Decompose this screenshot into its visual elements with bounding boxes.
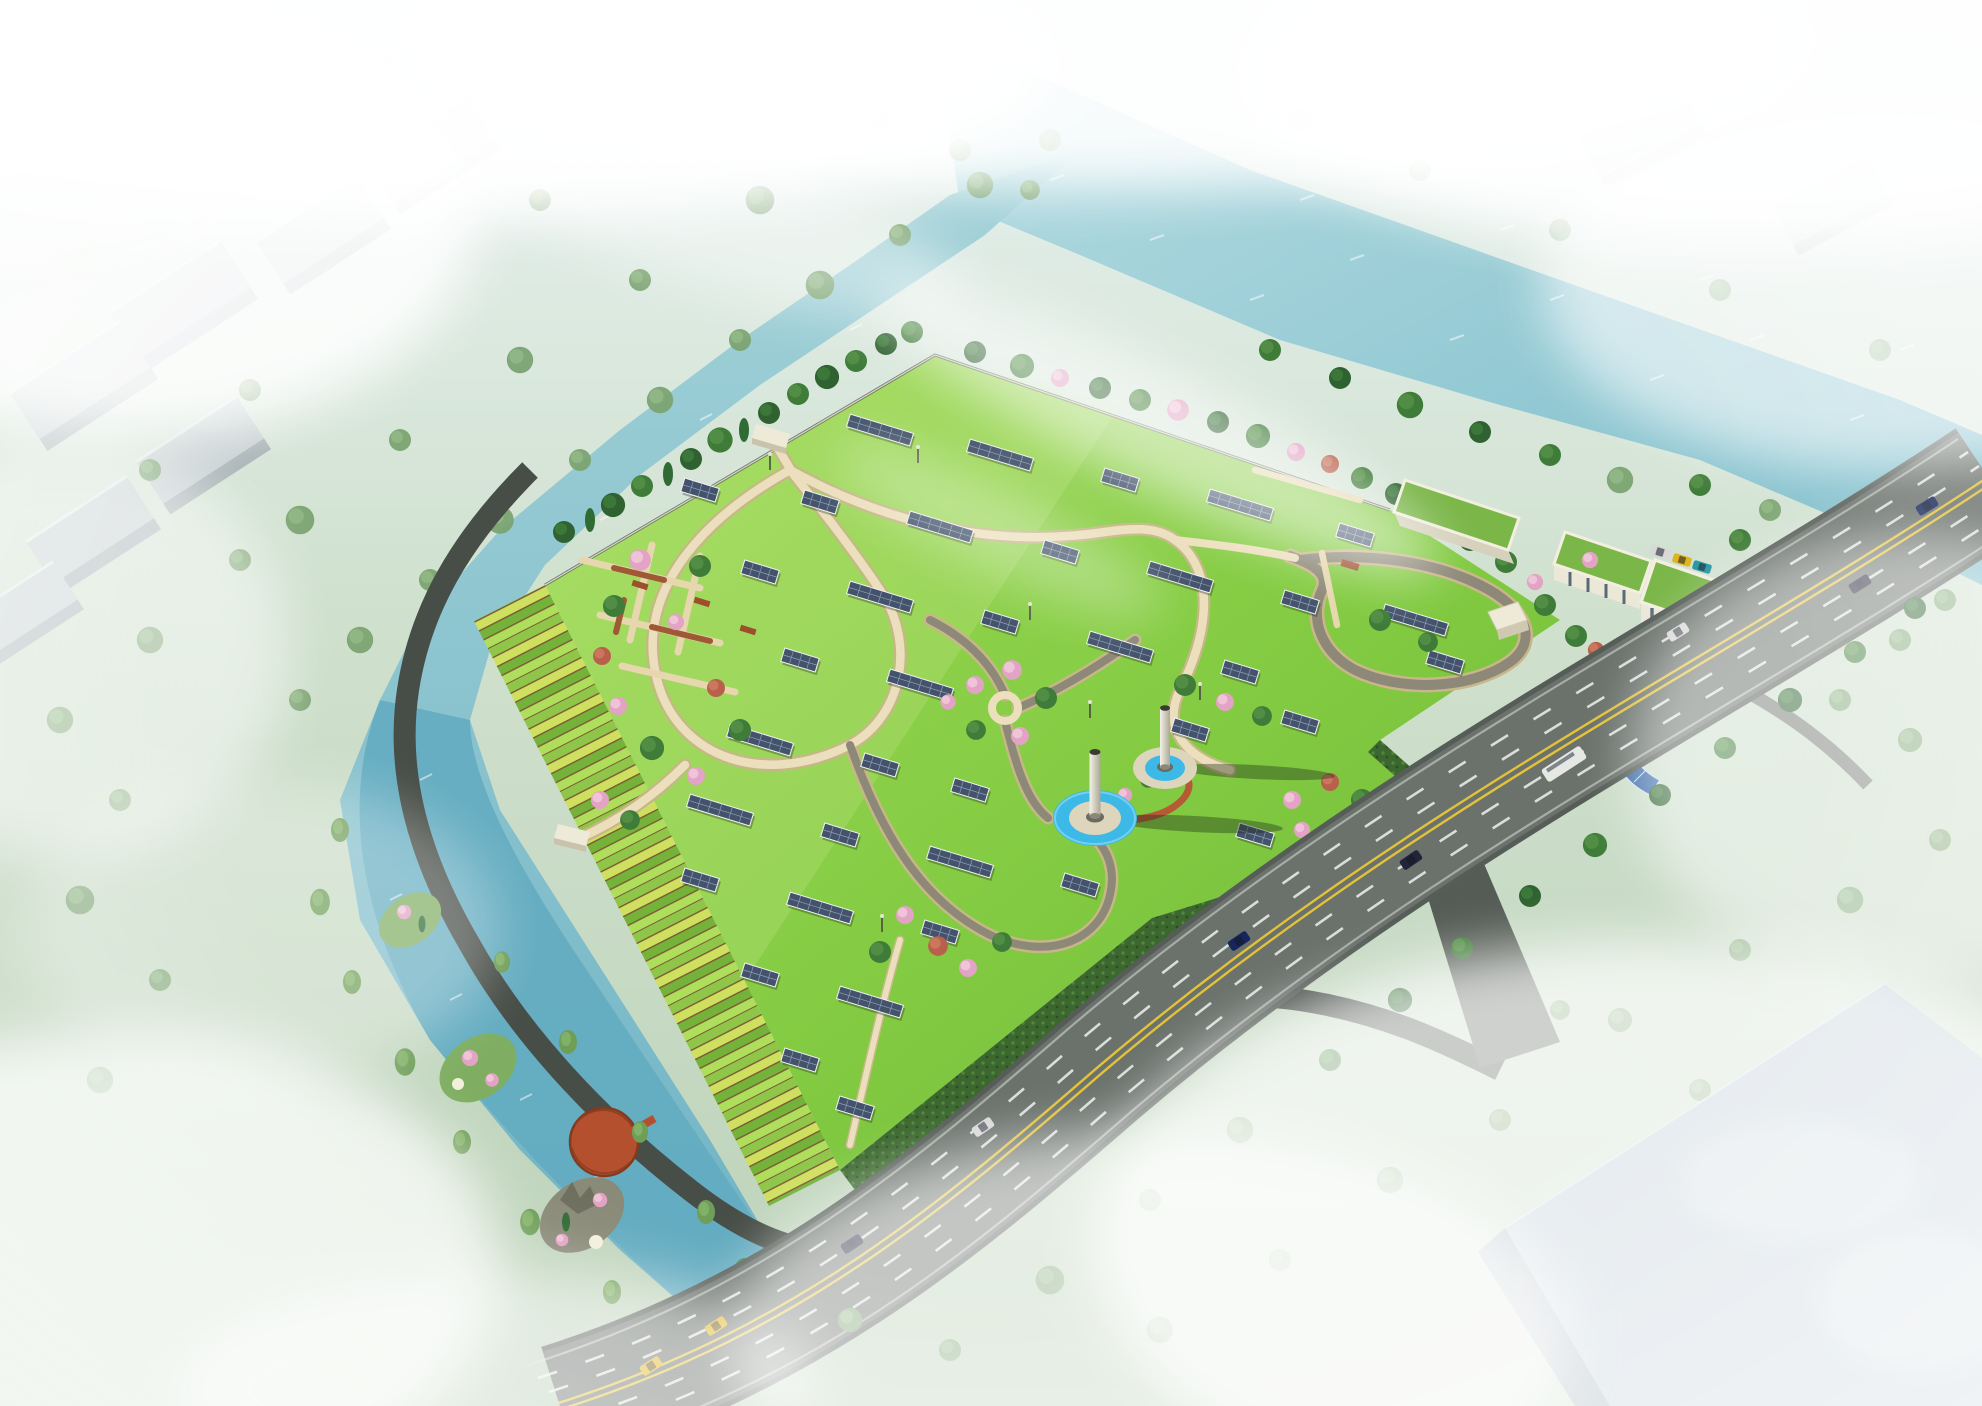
aerial-rendering-canvas [0,0,1982,1406]
aerial-rendering [0,0,1982,1406]
haze-vignette [0,0,1982,1406]
